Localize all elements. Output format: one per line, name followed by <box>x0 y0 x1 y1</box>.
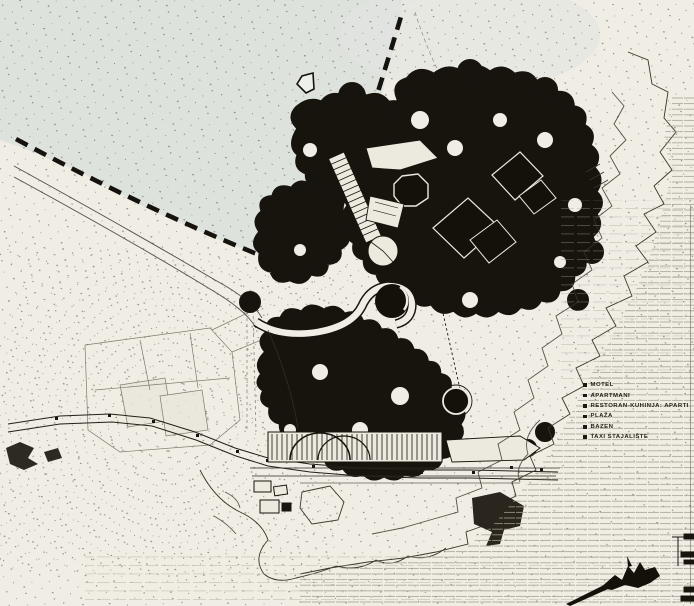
legend-item-plaza: PLAŽA <box>583 411 694 421</box>
legend-bullet-icon <box>583 394 587 398</box>
legend-bullet-icon <box>583 383 587 387</box>
round-building-lower <box>443 388 469 414</box>
building-octagon <box>394 174 428 206</box>
legend-label: RESTORAN-KUHINJA: APARTI <box>591 403 689 409</box>
legend-label: BAZEN <box>591 424 614 430</box>
site-plan-drawing <box>0 0 694 606</box>
legend-item-bazen: BAZEN <box>583 422 694 432</box>
legend-bullet-icon <box>583 425 587 429</box>
legend-item-motel: MOTEL <box>583 380 694 390</box>
legend-bullet-icon <box>583 404 587 408</box>
legend-item-restoran: RESTORAN-KUHINJA: APARTI <box>583 401 694 411</box>
legend-item-taxi: TAXI STAJALIŠTE <box>583 432 694 442</box>
legend-label: PLAŽA <box>591 414 613 420</box>
legend-item-apartmani: APARTMANI <box>583 390 694 400</box>
site-plan-scan: MOTEL APARTMANI RESTORAN-KUHINJA: APARTI… <box>0 0 694 606</box>
terrace-east <box>446 436 540 462</box>
legend-label: TAXI STAJALIŠTE <box>591 434 649 440</box>
legend: MOTEL APARTMANI RESTORAN-KUHINJA: APARTI… <box>583 380 694 442</box>
legend-bullet-icon <box>583 415 587 419</box>
legend-bullet-icon <box>583 435 587 439</box>
legend-label: MOTEL <box>591 382 614 388</box>
legend-label: APARTMANI <box>591 393 631 399</box>
